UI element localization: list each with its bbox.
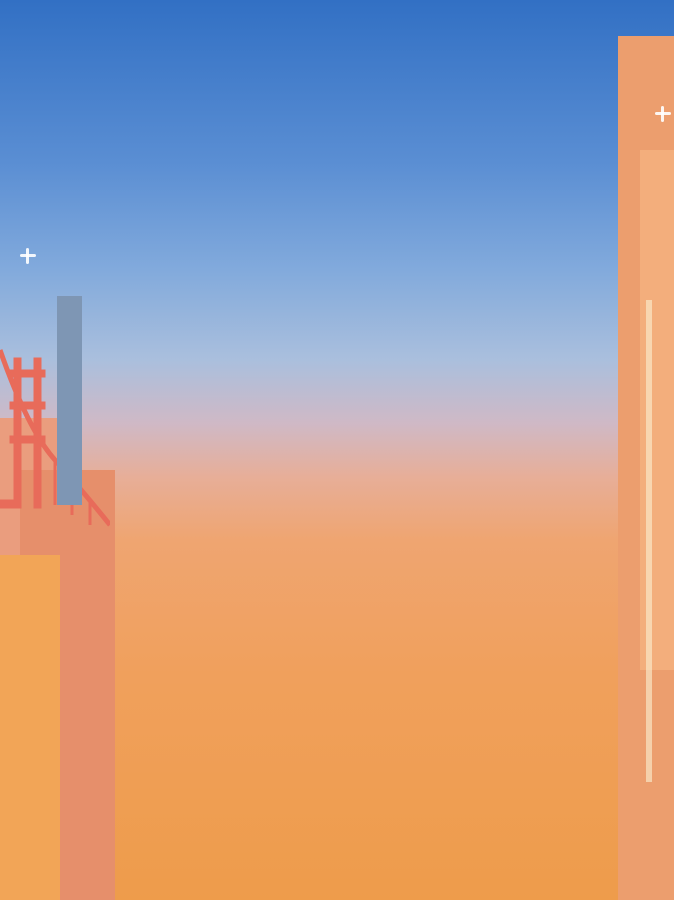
city-building: [0, 555, 60, 900]
sun-sparkle: [661, 106, 664, 122]
glass-building: [57, 296, 82, 505]
golden-gate-bridge: [0, 340, 110, 550]
sparkle: [20, 248, 36, 264]
game-scene: [0, 0, 674, 900]
city-light-stripe: [646, 300, 652, 782]
sparkle: [655, 106, 671, 122]
sun-sparkle: [26, 248, 29, 264]
